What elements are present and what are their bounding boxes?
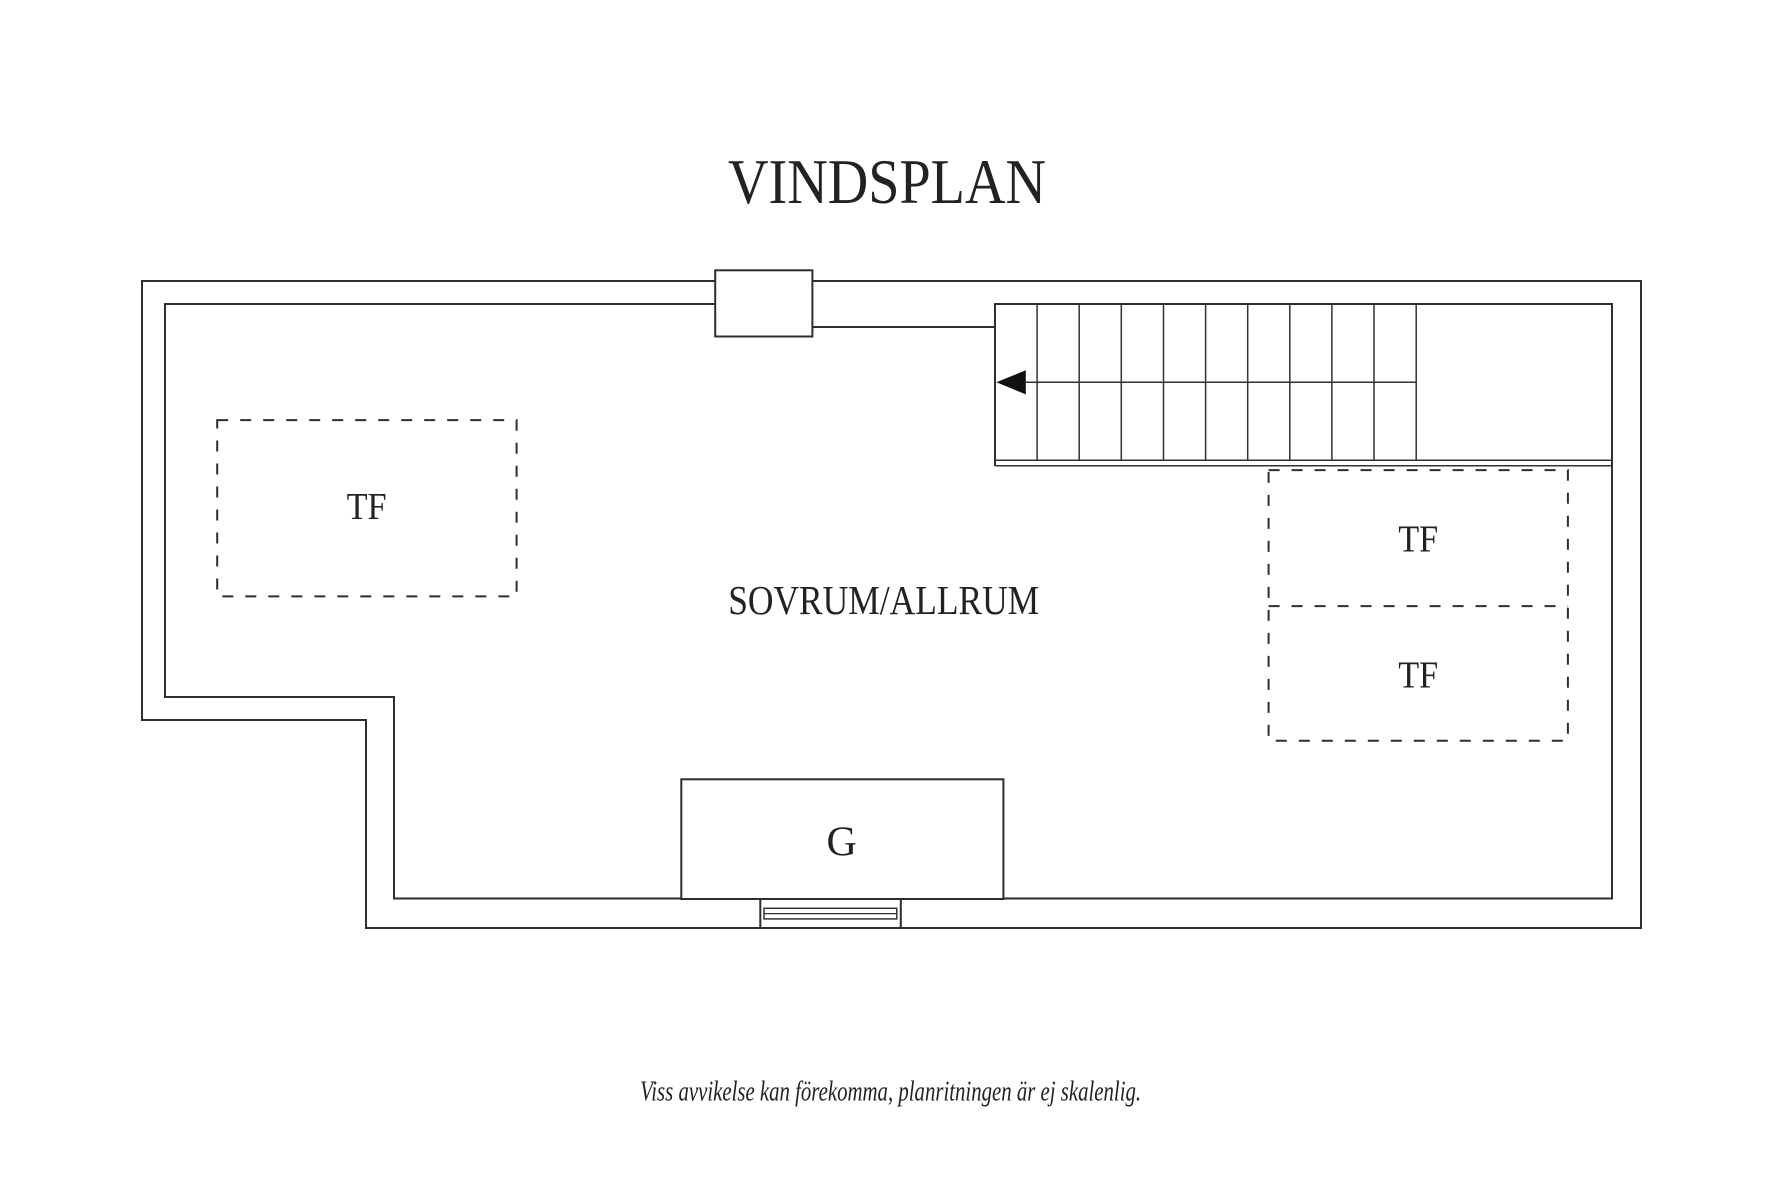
svg-text:TF: TF xyxy=(347,486,387,528)
svg-text:TF: TF xyxy=(1398,655,1438,697)
svg-text:VINDSPLAN: VINDSPLAN xyxy=(728,146,1046,217)
svg-text:TF: TF xyxy=(1398,519,1438,561)
svg-text:SOVRUM/ALLRUM: SOVRUM/ALLRUM xyxy=(728,577,1039,623)
svg-text:Viss avvikelse kan förekomma,: Viss avvikelse kan förekomma, planritnin… xyxy=(640,1075,1141,1107)
svg-text:G: G xyxy=(827,820,857,866)
